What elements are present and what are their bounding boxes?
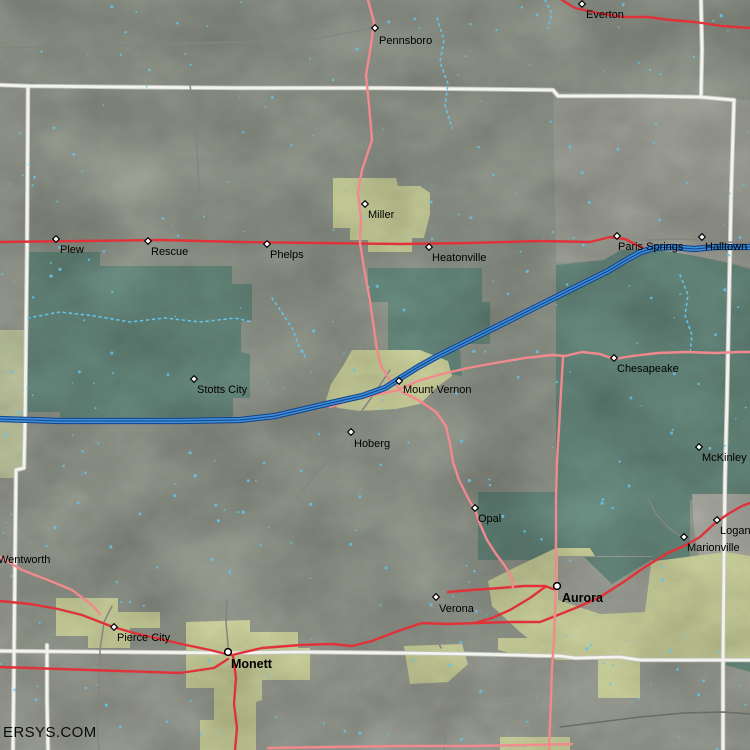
speckle bbox=[239, 97, 240, 98]
speckle bbox=[470, 216, 473, 219]
speckle bbox=[116, 581, 118, 583]
speckle bbox=[745, 407, 747, 409]
speckle bbox=[612, 665, 614, 667]
speckle bbox=[175, 316, 177, 318]
speckle bbox=[744, 704, 746, 706]
speckle bbox=[486, 614, 487, 615]
speckle bbox=[672, 429, 674, 431]
speckle bbox=[283, 387, 285, 389]
speckle bbox=[603, 70, 604, 71]
speckle bbox=[549, 120, 551, 122]
speckle bbox=[85, 687, 88, 690]
speckle bbox=[413, 18, 416, 21]
speckle bbox=[271, 96, 274, 99]
speckle bbox=[387, 733, 389, 735]
speckle bbox=[190, 700, 192, 702]
speckle bbox=[268, 527, 270, 529]
speckle bbox=[37, 685, 39, 687]
speckle bbox=[429, 603, 432, 606]
speckle bbox=[458, 214, 460, 216]
speckle bbox=[214, 504, 217, 507]
speckle bbox=[77, 502, 80, 505]
speckle bbox=[310, 577, 312, 579]
speckle bbox=[729, 193, 731, 195]
speckle bbox=[332, 321, 333, 322]
speckle bbox=[529, 64, 531, 66]
speckle bbox=[84, 472, 87, 475]
speckle bbox=[492, 281, 494, 283]
speckle bbox=[475, 610, 478, 613]
speckle bbox=[102, 250, 105, 253]
speckle bbox=[332, 79, 334, 81]
speckle bbox=[581, 171, 584, 174]
speckle bbox=[509, 698, 510, 699]
speckle bbox=[6, 522, 8, 524]
speckle bbox=[556, 304, 558, 306]
speckle bbox=[22, 174, 24, 176]
speckle bbox=[603, 662, 605, 664]
speckle bbox=[622, 3, 625, 6]
speckle bbox=[363, 217, 365, 219]
speckle bbox=[679, 293, 681, 295]
speckle bbox=[468, 581, 470, 583]
speckle bbox=[501, 515, 504, 518]
speckle bbox=[172, 225, 174, 227]
speckle bbox=[641, 405, 642, 406]
town-label-stotts-city: Stotts City bbox=[197, 384, 248, 396]
speckle bbox=[382, 399, 384, 401]
speckle bbox=[712, 20, 714, 22]
speckle bbox=[693, 56, 695, 58]
speckle bbox=[520, 6, 523, 9]
speckle bbox=[569, 559, 571, 561]
speckle bbox=[102, 104, 104, 106]
speckle bbox=[638, 698, 640, 700]
speckle bbox=[45, 545, 47, 547]
speckle bbox=[206, 25, 208, 27]
watermark-ersys: ERSYS.COM bbox=[3, 724, 97, 741]
speckle bbox=[552, 447, 554, 449]
speckle bbox=[17, 411, 20, 414]
speckle bbox=[650, 297, 653, 300]
speckle bbox=[344, 189, 346, 191]
speckle bbox=[53, 526, 56, 529]
speckle bbox=[519, 251, 521, 253]
speckle bbox=[167, 373, 170, 376]
speckle bbox=[359, 346, 360, 347]
speckle bbox=[311, 372, 313, 374]
speckle bbox=[83, 319, 85, 321]
speckle bbox=[211, 558, 214, 561]
speckle bbox=[312, 135, 314, 137]
speckle bbox=[460, 439, 463, 442]
speckle bbox=[81, 473, 83, 475]
town-label-heatonville: Heatonville bbox=[432, 252, 486, 264]
speckle bbox=[382, 129, 384, 131]
speckle bbox=[49, 274, 52, 277]
speckle bbox=[135, 11, 137, 13]
speckle bbox=[81, 170, 83, 172]
speckle bbox=[676, 668, 679, 671]
speckle bbox=[686, 182, 688, 184]
speckle bbox=[228, 571, 231, 574]
speckle bbox=[630, 396, 633, 399]
town-label-hoberg: Hoberg bbox=[354, 438, 390, 450]
speckle bbox=[26, 386, 28, 388]
speckle bbox=[95, 407, 97, 409]
speckle bbox=[468, 479, 471, 482]
speckle bbox=[263, 462, 266, 465]
speckle bbox=[452, 595, 454, 597]
speckle bbox=[56, 201, 58, 203]
speckle bbox=[217, 519, 220, 522]
speckle bbox=[728, 254, 731, 257]
speckle bbox=[312, 329, 315, 332]
speckle bbox=[242, 131, 244, 133]
town-label-verona: Verona bbox=[439, 603, 475, 615]
town-marker-aurora bbox=[554, 583, 561, 590]
speckle bbox=[484, 351, 486, 353]
speckle bbox=[536, 350, 539, 353]
speckle bbox=[717, 650, 719, 652]
speckle bbox=[119, 726, 122, 729]
speckle bbox=[654, 142, 656, 144]
speckle bbox=[616, 148, 619, 151]
speckle bbox=[407, 441, 409, 443]
speckle bbox=[526, 270, 529, 273]
speckle bbox=[63, 465, 65, 467]
town-label-halltown: Halltown bbox=[705, 241, 747, 253]
speckle bbox=[459, 641, 462, 644]
speckle bbox=[120, 601, 122, 603]
speckle bbox=[540, 538, 543, 541]
speckle bbox=[457, 74, 459, 76]
speckle bbox=[419, 27, 421, 29]
speckle bbox=[473, 570, 476, 573]
speckle bbox=[724, 445, 726, 447]
speckle bbox=[349, 543, 352, 546]
speckle bbox=[649, 68, 651, 70]
speckle bbox=[111, 291, 113, 293]
speckle bbox=[189, 64, 191, 66]
speckle bbox=[50, 262, 52, 264]
speckle bbox=[540, 91, 542, 93]
speckle bbox=[33, 176, 36, 179]
speckle bbox=[477, 146, 480, 149]
speckle bbox=[344, 730, 347, 733]
speckle bbox=[226, 594, 228, 596]
speckle bbox=[291, 542, 293, 544]
speckle bbox=[552, 231, 554, 233]
speckle bbox=[618, 460, 620, 462]
speckle bbox=[678, 736, 680, 738]
speckle bbox=[720, 14, 723, 17]
speckle bbox=[35, 698, 38, 701]
speckle bbox=[323, 722, 325, 724]
speckle bbox=[465, 55, 467, 57]
speckle bbox=[697, 693, 700, 696]
speckle bbox=[129, 601, 131, 603]
speckle bbox=[110, 351, 113, 354]
speckle bbox=[32, 296, 35, 299]
speckle bbox=[517, 376, 520, 379]
speckle bbox=[72, 434, 74, 436]
speckle bbox=[28, 164, 30, 166]
speckle bbox=[31, 184, 33, 186]
speckle bbox=[479, 690, 482, 693]
speckle bbox=[358, 495, 361, 498]
speckle bbox=[162, 217, 165, 220]
speckle bbox=[275, 716, 277, 718]
speckle bbox=[565, 635, 567, 637]
speckle bbox=[737, 306, 739, 308]
town-label-everton: Everton bbox=[586, 9, 624, 21]
speckle bbox=[379, 464, 382, 467]
speckle bbox=[412, 659, 415, 662]
speckle bbox=[492, 173, 495, 176]
speckle bbox=[177, 235, 179, 237]
speckle bbox=[247, 479, 250, 482]
speckle bbox=[536, 14, 539, 17]
speckle bbox=[624, 640, 625, 641]
speckle bbox=[573, 237, 575, 239]
speckle bbox=[556, 381, 558, 383]
speckle bbox=[507, 293, 510, 296]
speckle bbox=[661, 578, 664, 581]
speckle bbox=[146, 86, 148, 88]
speckle bbox=[431, 185, 432, 186]
speckle bbox=[193, 476, 195, 478]
speckle bbox=[685, 634, 687, 636]
speckle bbox=[659, 73, 661, 75]
speckle bbox=[267, 674, 269, 676]
speckle bbox=[200, 733, 203, 736]
speckle bbox=[460, 738, 463, 741]
speckle bbox=[488, 479, 490, 481]
map-canvas[interactable]: EvertonPennsboroMillerHeatonvilleParis S… bbox=[0, 0, 750, 750]
speckle bbox=[87, 53, 89, 55]
speckle bbox=[735, 418, 737, 420]
speckle bbox=[609, 683, 611, 685]
speckle bbox=[176, 22, 179, 25]
speckle bbox=[189, 451, 192, 454]
speckle bbox=[301, 350, 304, 353]
speckle bbox=[2, 532, 4, 534]
speckle bbox=[379, 604, 381, 606]
speckle bbox=[569, 145, 572, 148]
town-wentworth: Wentworth bbox=[0, 554, 50, 566]
speckle bbox=[431, 238, 433, 240]
speckle bbox=[611, 507, 614, 510]
speckle bbox=[266, 381, 268, 383]
speckle bbox=[10, 513, 12, 515]
speckle bbox=[97, 684, 99, 686]
town-label-mount-vernon: Mount Vernon bbox=[403, 384, 472, 396]
speckle bbox=[739, 236, 742, 239]
speckle bbox=[385, 566, 388, 569]
speckle bbox=[489, 484, 492, 487]
town-label-opal: Opal bbox=[478, 513, 501, 525]
speckle bbox=[244, 231, 246, 233]
speckle bbox=[222, 732, 224, 734]
speckle bbox=[723, 288, 726, 291]
speckle bbox=[81, 450, 84, 453]
speckle bbox=[203, 216, 205, 218]
speckle bbox=[224, 509, 226, 511]
speckle bbox=[40, 50, 42, 52]
speckle bbox=[523, 530, 526, 533]
town-label-chesapeake: Chesapeake bbox=[617, 363, 679, 375]
speckle bbox=[358, 731, 361, 734]
speckle bbox=[309, 503, 312, 506]
speckle bbox=[669, 649, 672, 652]
speckle bbox=[230, 569, 232, 571]
speckle bbox=[32, 394, 34, 396]
speckle bbox=[674, 317, 675, 318]
speckle bbox=[387, 20, 390, 23]
speckle bbox=[589, 644, 592, 647]
speckle bbox=[655, 122, 658, 125]
speckle bbox=[650, 684, 652, 686]
speckle bbox=[658, 218, 661, 221]
speckle bbox=[480, 100, 481, 101]
speckle bbox=[237, 511, 239, 513]
speckle bbox=[403, 308, 406, 311]
speckle bbox=[242, 511, 245, 514]
speckle bbox=[240, 1, 242, 3]
speckle bbox=[207, 659, 210, 662]
speckle bbox=[10, 575, 12, 577]
speckle bbox=[566, 283, 569, 286]
speckle bbox=[536, 697, 537, 698]
speckle bbox=[628, 484, 631, 487]
speckle bbox=[708, 447, 711, 450]
speckle bbox=[514, 192, 516, 194]
speckle bbox=[357, 689, 359, 691]
town-label-pennsboro: Pennsboro bbox=[379, 35, 432, 47]
speckle bbox=[110, 5, 113, 8]
town-marker-monett bbox=[225, 649, 232, 656]
speckle bbox=[72, 382, 74, 384]
speckle bbox=[714, 333, 717, 336]
speckle bbox=[54, 634, 56, 636]
speckle bbox=[166, 720, 169, 723]
speckle bbox=[588, 201, 591, 204]
speckle bbox=[747, 131, 749, 133]
speckle bbox=[630, 701, 632, 703]
speckle bbox=[300, 469, 303, 472]
speckle bbox=[240, 308, 241, 309]
speckle bbox=[184, 53, 186, 55]
speckle bbox=[600, 501, 603, 504]
speckle bbox=[661, 566, 663, 568]
town-label-logan: Logan bbox=[720, 525, 750, 537]
town-label-marionville: Marionville bbox=[687, 542, 740, 554]
speckle bbox=[214, 460, 216, 462]
speckle bbox=[723, 223, 725, 225]
speckle bbox=[4, 372, 6, 374]
speckle bbox=[472, 350, 475, 353]
map-svg[interactable]: EvertonPennsboroMillerHeatonvilleParis S… bbox=[0, 0, 750, 750]
speckle bbox=[382, 408, 384, 410]
town-label-aurora: Aurora bbox=[562, 591, 604, 605]
county-north-vertical bbox=[701, 0, 702, 97]
speckle bbox=[97, 443, 99, 445]
speckle bbox=[264, 106, 266, 108]
speckle bbox=[5, 433, 8, 436]
speckle bbox=[738, 685, 740, 687]
speckle bbox=[353, 369, 356, 372]
town-label-monett: Monett bbox=[231, 657, 273, 671]
speckle bbox=[58, 268, 61, 271]
relief-texture bbox=[0, 0, 750, 750]
speckle bbox=[105, 703, 108, 706]
speckle bbox=[260, 544, 262, 546]
speckle bbox=[618, 26, 620, 28]
speckle bbox=[670, 431, 673, 434]
speckle bbox=[148, 69, 151, 72]
speckle bbox=[449, 664, 452, 667]
speckle bbox=[120, 54, 122, 56]
speckle bbox=[602, 498, 605, 501]
speckle bbox=[174, 483, 176, 485]
speckle bbox=[10, 183, 12, 185]
speckle bbox=[743, 183, 745, 185]
speckle bbox=[227, 181, 229, 183]
speckle bbox=[638, 62, 640, 64]
speckle bbox=[139, 513, 142, 516]
speckle bbox=[526, 721, 528, 723]
speckle bbox=[72, 153, 75, 156]
town-label-pierce-city: Pierce City bbox=[117, 632, 171, 644]
town-label-wentworth: Wentworth bbox=[0, 554, 50, 566]
speckle bbox=[52, 126, 55, 129]
speckle bbox=[78, 370, 81, 373]
speckle bbox=[290, 144, 292, 146]
town-label-mckinley: McKinley bbox=[702, 452, 747, 464]
speckle bbox=[376, 285, 379, 288]
speckle bbox=[93, 383, 95, 385]
speckle bbox=[156, 566, 158, 568]
speckle bbox=[636, 342, 638, 344]
speckle bbox=[88, 259, 90, 261]
town-label-paris-springs: Paris Springs bbox=[618, 241, 684, 253]
town-label-rescue: Rescue bbox=[151, 246, 188, 258]
speckle bbox=[19, 132, 21, 134]
speckle bbox=[13, 281, 14, 282]
speckle bbox=[629, 285, 631, 287]
town-label-plew: Plew bbox=[60, 244, 84, 256]
speckle bbox=[727, 30, 729, 32]
speckle bbox=[1, 273, 3, 275]
speckle bbox=[569, 371, 571, 373]
speckle bbox=[255, 480, 257, 482]
speckle bbox=[356, 47, 359, 50]
speckle bbox=[143, 605, 145, 607]
speckle bbox=[465, 565, 467, 567]
speckle bbox=[13, 689, 16, 692]
speckle bbox=[309, 58, 311, 60]
speckle bbox=[697, 383, 700, 386]
town-label-miller: Miller bbox=[368, 209, 395, 221]
speckle bbox=[11, 371, 14, 374]
speckle bbox=[469, 23, 471, 25]
speckle bbox=[269, 390, 270, 391]
town-label-phelps: Phelps bbox=[270, 249, 304, 261]
speckle bbox=[173, 494, 176, 497]
speckle bbox=[318, 433, 320, 435]
speckle bbox=[124, 31, 126, 33]
